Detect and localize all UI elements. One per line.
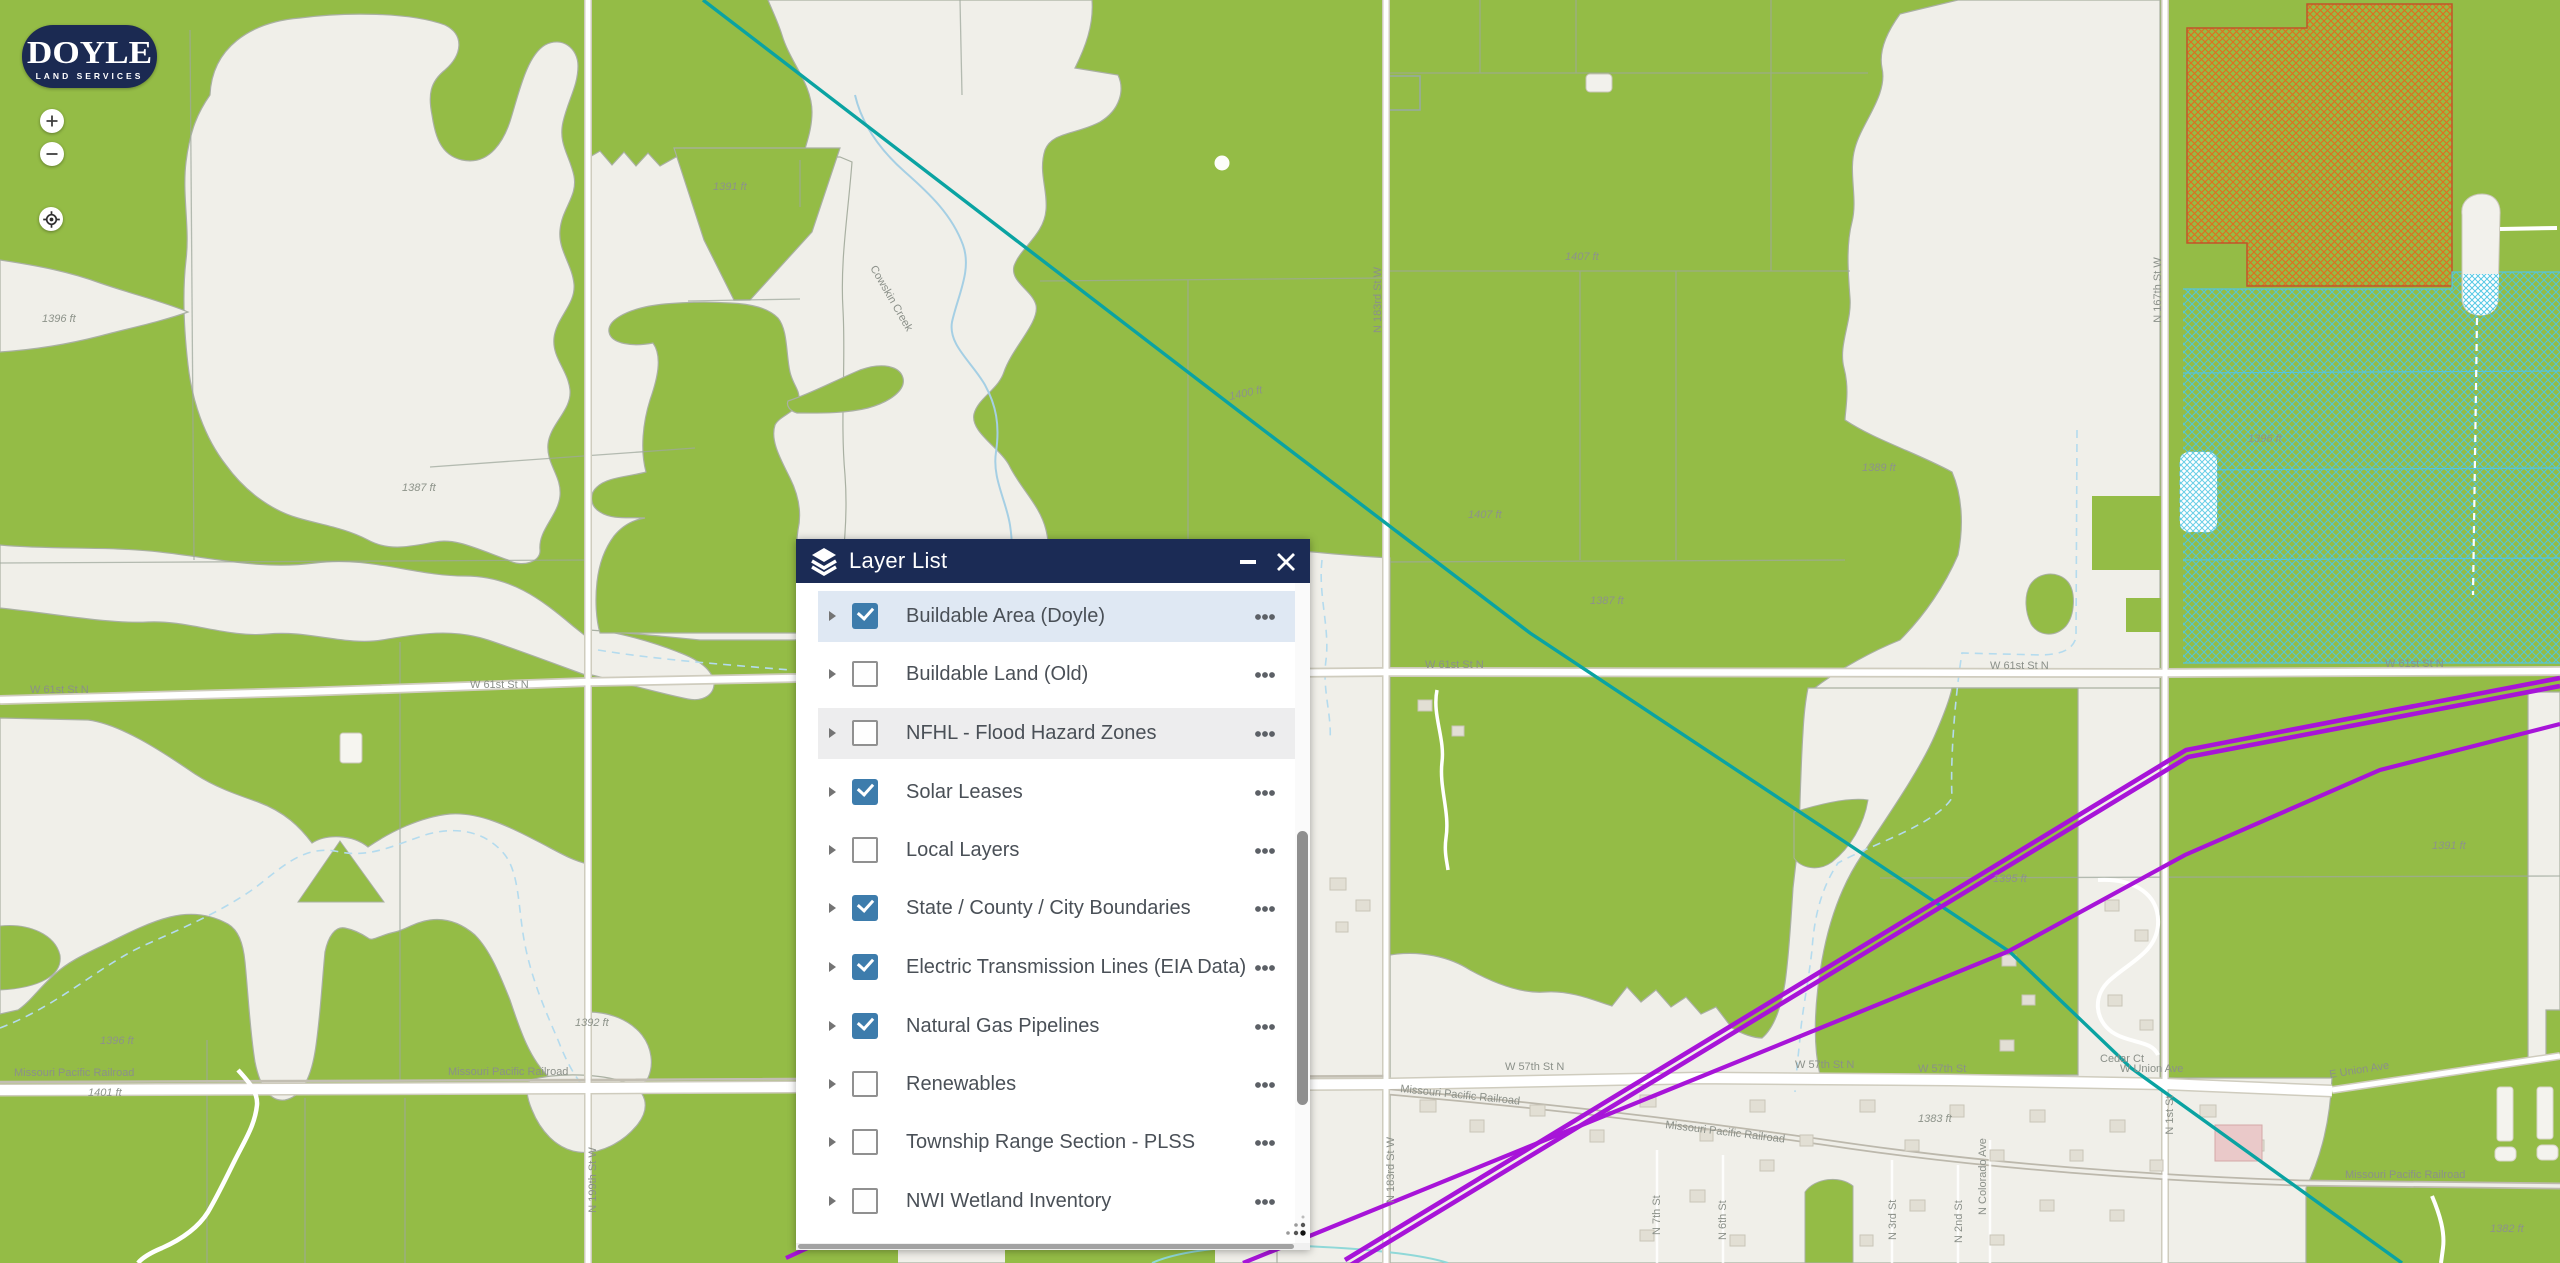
svg-text:W 57th St: W 57th St [1918, 1063, 1966, 1075]
svg-text:N Colorado Ave: N Colorado Ave [1977, 1138, 1989, 1215]
svg-text:1382 ft: 1382 ft [2490, 1223, 2525, 1235]
svg-text:W 61st St N: W 61st St N [30, 684, 89, 696]
svg-text:Missouri Pacific Railroad: Missouri Pacific Railroad [14, 1067, 134, 1079]
svg-text:1392 ft: 1392 ft [575, 1017, 610, 1029]
svg-text:1396 ft: 1396 ft [100, 1035, 135, 1047]
svg-text:N 183rd St W: N 183rd St W [1385, 1136, 1397, 1203]
svg-text:N 199th St W: N 199th St W [587, 1147, 599, 1213]
svg-text:N 6th St: N 6th St [1717, 1200, 1729, 1240]
svg-text:N 7th St: N 7th St [1651, 1195, 1663, 1235]
svg-text:N 167th St W: N 167th St W [2152, 257, 2164, 323]
svg-text:Missouri Pacific Railroad: Missouri Pacific Railroad [448, 1066, 568, 1078]
svg-text:N 1st St: N 1st St [2164, 1095, 2176, 1134]
svg-text:W 61st St N: W 61st St N [1425, 659, 1484, 671]
svg-text:1391 ft: 1391 ft [713, 181, 748, 193]
svg-text:1401 ft: 1401 ft [88, 1087, 123, 1099]
svg-text:W 61st St N: W 61st St N [470, 679, 529, 691]
svg-text:W 57th St N: W 57th St N [1795, 1059, 1854, 1071]
svg-text:1396 ft: 1396 ft [2248, 433, 2283, 445]
svg-text:1407 ft: 1407 ft [1565, 251, 1600, 263]
svg-text:1387 ft: 1387 ft [1590, 595, 1625, 607]
svg-text:1396 ft: 1396 ft [42, 313, 77, 325]
svg-text:1387 ft: 1387 ft [402, 482, 437, 494]
svg-text:N 183rd St W: N 183rd St W [1372, 266, 1384, 333]
svg-text:W 61st St N: W 61st St N [2385, 658, 2444, 670]
svg-text:1407 ft: 1407 ft [1468, 509, 1503, 521]
svg-text:W 61st St N: W 61st St N [1990, 660, 2049, 672]
svg-text:1383 ft: 1383 ft [1918, 1113, 1953, 1125]
svg-text:Missouri Pacific Railroad: Missouri Pacific Railroad [2345, 1169, 2465, 1181]
svg-text:1389 ft: 1389 ft [1862, 462, 1897, 474]
svg-text:1391 ft: 1391 ft [2432, 840, 2467, 852]
svg-text:N 2nd St: N 2nd St [1953, 1200, 1965, 1243]
svg-text:W 57th St N: W 57th St N [1505, 1061, 1564, 1073]
svg-text:Cedar Ct: Cedar Ct [2100, 1053, 2144, 1065]
svg-text:N 3rd St: N 3rd St [1887, 1200, 1899, 1240]
svg-text:1395 ft: 1395 ft [1993, 873, 2028, 885]
